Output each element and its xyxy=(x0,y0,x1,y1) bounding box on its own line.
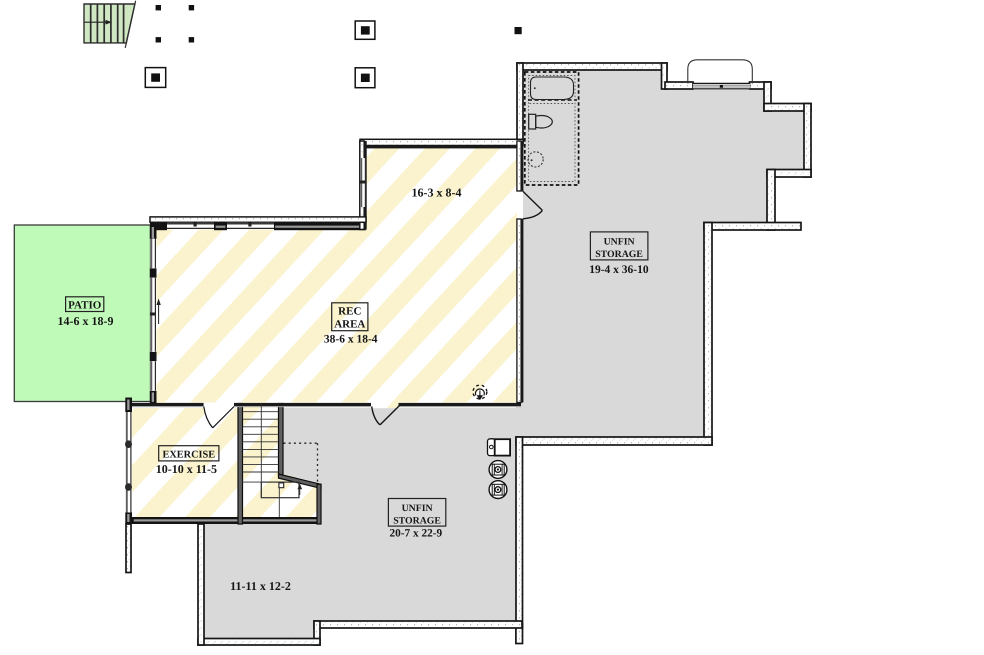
svg-text:10-10 x 11-5: 10-10 x 11-5 xyxy=(156,462,217,476)
svg-text:EXERCISE: EXERCISE xyxy=(162,450,215,461)
svg-text:20-7 x 22-9: 20-7 x 22-9 xyxy=(389,528,442,540)
svg-text:11-11 x 12-2: 11-11 x 12-2 xyxy=(230,579,291,593)
svg-text:UNFIN: UNFIN xyxy=(604,236,635,247)
svg-text:PATIO: PATIO xyxy=(68,300,102,312)
svg-text:38-6 x 18-4: 38-6 x 18-4 xyxy=(324,333,378,345)
svg-text:19-4 x 36-10: 19-4 x 36-10 xyxy=(589,264,649,276)
svg-text:14-6 x 18-9: 14-6 x 18-9 xyxy=(58,314,114,328)
svg-text:REC: REC xyxy=(338,305,361,317)
svg-text:AREA: AREA xyxy=(334,318,365,330)
svg-text:16-3 x 8-4: 16-3 x 8-4 xyxy=(412,186,462,200)
svg-text:UNFIN: UNFIN xyxy=(402,503,433,514)
svg-text:STORAGE: STORAGE xyxy=(595,249,643,260)
svg-text:STORAGE: STORAGE xyxy=(393,516,441,527)
